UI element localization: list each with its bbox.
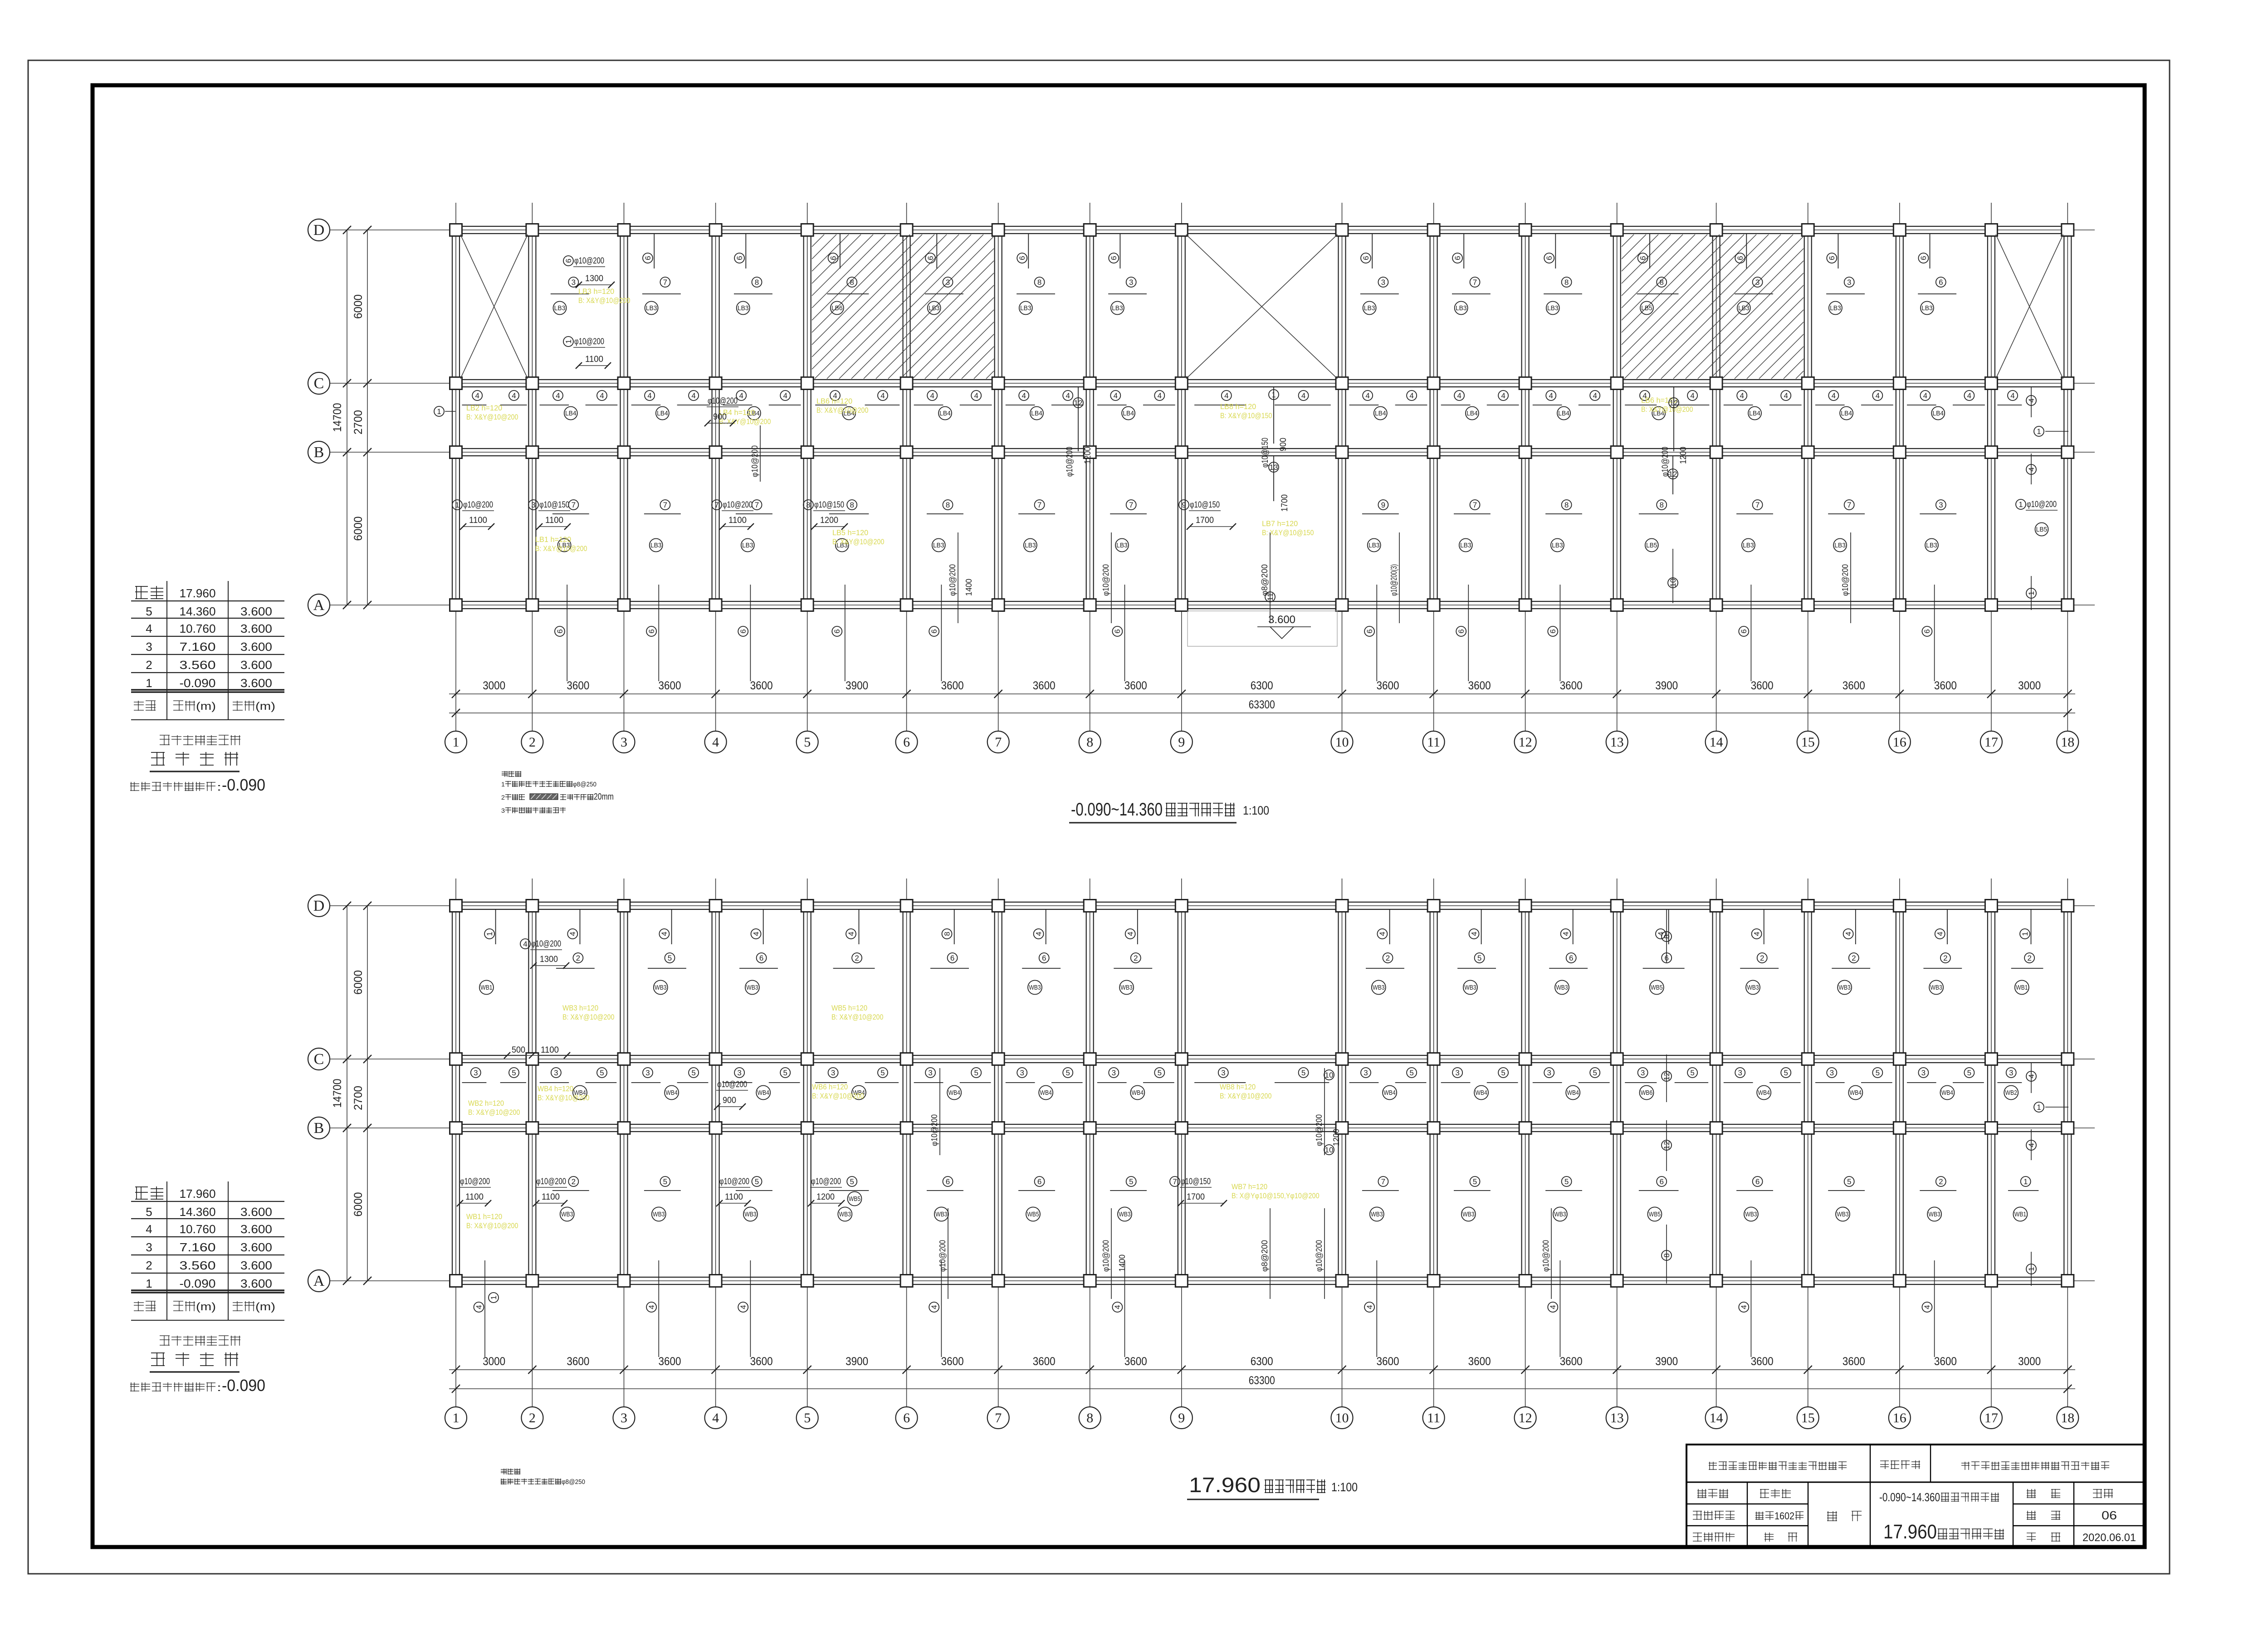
- svg-text:1: 1: [455, 501, 459, 509]
- svg-text:1400: 1400: [1118, 1254, 1127, 1272]
- svg-text:1400: 1400: [964, 579, 973, 596]
- svg-text:4: 4: [880, 391, 885, 400]
- svg-text:1:100: 1:100: [1331, 1480, 1358, 1494]
- svg-text:φ10@150: φ10@150: [1181, 1177, 1211, 1186]
- svg-text:3600: 3600: [750, 679, 773, 692]
- svg-text:WB3: WB3: [1747, 984, 1759, 991]
- svg-text:WB3: WB3: [1462, 1210, 1474, 1218]
- svg-text:1100: 1100: [545, 516, 563, 525]
- svg-text:6: 6: [644, 256, 652, 260]
- svg-text:LB4: LB4: [1031, 410, 1042, 417]
- svg-text:WB1 h=120: WB1 h=120: [466, 1212, 502, 1221]
- svg-text:1100: 1100: [541, 1045, 559, 1055]
- svg-text:LB3: LB3: [1547, 304, 1559, 312]
- svg-text:3600: 3600: [1468, 1355, 1491, 1368]
- svg-text:3600: 3600: [1843, 679, 1865, 692]
- svg-text:1200: 1200: [820, 516, 838, 525]
- svg-text:WB3: WB3: [935, 1210, 947, 1218]
- svg-text:14: 14: [1710, 735, 1723, 750]
- svg-text:1602: 1602: [1774, 1510, 1794, 1522]
- svg-text:2700: 2700: [352, 1086, 365, 1110]
- svg-text:2: 2: [146, 658, 152, 672]
- svg-text:WB3 h=120: WB3 h=120: [562, 1004, 598, 1012]
- svg-text:4: 4: [1923, 391, 1927, 400]
- svg-text:B: X&Y@10@200: B: X&Y@10@200: [466, 1221, 518, 1230]
- svg-text:LB5 h=120: LB5 h=120: [832, 528, 868, 537]
- svg-text:4: 4: [600, 391, 604, 400]
- svg-text:5: 5: [880, 1069, 885, 1077]
- svg-text:7: 7: [1037, 501, 1041, 509]
- svg-text:8: 8: [1564, 501, 1569, 509]
- svg-text:LB3: LB3: [1369, 542, 1380, 549]
- svg-text:5: 5: [755, 1177, 759, 1186]
- svg-text:6: 6: [1755, 1177, 1760, 1186]
- svg-text:WB3: WB3: [1838, 984, 1850, 991]
- svg-text:4: 4: [475, 391, 479, 400]
- svg-text:6: 6: [1638, 256, 1647, 260]
- svg-text:LB3: LB3: [1926, 542, 1937, 549]
- svg-text:1700: 1700: [1280, 494, 1290, 512]
- svg-text:WB2 h=120: WB2 h=120: [468, 1099, 504, 1108]
- svg-text:4: 4: [712, 735, 719, 750]
- svg-text:B: X&Y@10@200: B: X&Y@10@200: [562, 1013, 614, 1021]
- svg-text:4: 4: [1967, 391, 1971, 400]
- svg-text:3600: 3600: [567, 1355, 589, 1368]
- svg-text:4: 4: [1593, 391, 1597, 400]
- svg-text:1: 1: [146, 676, 152, 690]
- svg-text:φ10@200: φ10@200: [574, 337, 604, 347]
- svg-text:1: 1: [453, 735, 459, 750]
- svg-text:φ10@200: φ10@200: [930, 1114, 939, 1146]
- svg-text:7.160: 7.160: [180, 640, 216, 654]
- svg-text:WB6: WB6: [1641, 1089, 1652, 1097]
- svg-text:LB3 h=120: LB3 h=120: [578, 287, 614, 296]
- svg-text:4: 4: [1832, 391, 1836, 400]
- svg-text:16: 16: [1893, 735, 1906, 750]
- svg-text:1700: 1700: [1196, 516, 1214, 525]
- svg-text:1200: 1200: [816, 1192, 835, 1202]
- svg-text:3.600: 3.600: [1268, 614, 1295, 626]
- svg-text:B: X&Y@10@200: B: X&Y@10@200: [816, 406, 868, 415]
- svg-text:WB4: WB4: [665, 1089, 677, 1097]
- svg-text:4: 4: [1923, 1305, 1931, 1309]
- svg-text:900: 900: [713, 412, 727, 422]
- svg-text:7: 7: [714, 501, 719, 509]
- svg-text:LB3: LB3: [1116, 542, 1128, 549]
- svg-text:4: 4: [739, 391, 743, 400]
- svg-text:6: 6: [1453, 256, 1462, 260]
- svg-text:φ10@200: φ10@200: [460, 1177, 490, 1186]
- svg-text:LB3: LB3: [1020, 304, 1031, 312]
- svg-text:5: 5: [804, 735, 811, 750]
- svg-text:8: 8: [1037, 278, 1041, 287]
- svg-text:3600: 3600: [941, 1355, 964, 1368]
- svg-text:B: B: [314, 1120, 324, 1137]
- svg-text:B: X&Y@10@200: B: X&Y@10@200: [578, 296, 630, 305]
- svg-text:5: 5: [1593, 1069, 1597, 1077]
- svg-text:1: 1: [2021, 932, 2029, 936]
- svg-text:6: 6: [926, 256, 935, 260]
- svg-text:WB4 h=120: WB4 h=120: [538, 1084, 573, 1093]
- svg-text:5: 5: [1876, 1069, 1880, 1077]
- svg-text:8: 8: [850, 278, 854, 287]
- svg-text:5: 5: [1473, 1177, 1477, 1186]
- svg-text:12: 12: [1519, 1411, 1532, 1425]
- svg-text:3: 3: [554, 1069, 558, 1077]
- svg-text:WB7 h=120: WB7 h=120: [1232, 1182, 1267, 1191]
- svg-text:WB4: WB4: [1132, 1089, 1144, 1097]
- svg-text:5: 5: [1409, 1069, 1413, 1077]
- svg-text:LB3: LB3: [1456, 304, 1467, 312]
- svg-text:3600: 3600: [1124, 1355, 1147, 1368]
- svg-text:φ10@200: φ10@200: [2027, 500, 2057, 509]
- svg-text:B: X&Y@10@150: B: X&Y@10@150: [1262, 528, 1314, 537]
- svg-text:WB2: WB2: [2005, 1089, 2017, 1097]
- svg-text:6: 6: [833, 629, 841, 633]
- svg-text:4: 4: [739, 1305, 748, 1309]
- svg-text:5: 5: [1784, 1069, 1788, 1077]
- svg-text:LB3: LB3: [554, 304, 566, 312]
- svg-text:4: 4: [1936, 932, 1945, 936]
- svg-text:φ10@150: φ10@150: [1261, 438, 1270, 468]
- svg-text:4: 4: [1301, 391, 1305, 400]
- svg-text:LB7 h=120: LB7 h=120: [1262, 519, 1298, 528]
- svg-text:4: 4: [1549, 1305, 1557, 1309]
- svg-text:WB3: WB3: [1837, 1210, 1848, 1218]
- svg-text:φ10@200: φ10@200: [1065, 447, 1075, 477]
- svg-text:4: 4: [1690, 391, 1694, 400]
- svg-text:4: 4: [1022, 391, 1026, 400]
- svg-text:4: 4: [1066, 391, 1070, 400]
- svg-text:2: 2: [576, 954, 580, 962]
- svg-text:4: 4: [1876, 391, 1880, 400]
- svg-text:4: 4: [647, 1305, 656, 1309]
- svg-text:10: 10: [1325, 1071, 1334, 1079]
- svg-text:C: C: [314, 375, 324, 392]
- svg-text:LB3: LB3: [933, 542, 944, 549]
- svg-text:2: 2: [572, 1177, 576, 1186]
- svg-text:φ10@200: φ10@200: [574, 256, 604, 266]
- svg-text:4: 4: [660, 932, 669, 936]
- svg-text:6: 6: [903, 735, 910, 750]
- svg-text:6: 6: [1365, 629, 1374, 633]
- svg-text:5: 5: [783, 1069, 787, 1077]
- svg-text:3.600: 3.600: [240, 1205, 272, 1219]
- svg-text:1100: 1100: [585, 355, 603, 364]
- svg-text:10.760: 10.760: [180, 622, 216, 635]
- svg-text:4: 4: [1126, 932, 1135, 936]
- svg-text:8: 8: [1086, 1411, 1093, 1425]
- svg-text:B: X&Y@10@200: B: X&Y@10@200: [466, 413, 518, 421]
- svg-text:8: 8: [806, 501, 810, 509]
- svg-text:φ10@200: φ10@200: [1101, 564, 1110, 596]
- svg-text:WB3: WB3: [1556, 984, 1568, 991]
- svg-text:3.600: 3.600: [240, 640, 272, 654]
- svg-text:-0.090~14.360: -0.090~14.360: [1879, 1490, 1940, 1504]
- svg-text:7: 7: [1847, 501, 1851, 509]
- svg-text:WB3: WB3: [839, 1210, 851, 1218]
- svg-text:WB5: WB5: [1027, 1210, 1039, 1218]
- svg-text:4: 4: [1378, 932, 1387, 936]
- svg-text:6: 6: [950, 954, 954, 962]
- svg-text:-0.090: -0.090: [222, 1376, 265, 1395]
- svg-text:LB4: LB4: [1466, 410, 1478, 417]
- svg-text:φ10@200: φ10@200: [717, 1080, 747, 1089]
- svg-text:LB3: LB3: [929, 304, 940, 312]
- svg-text:3.600: 3.600: [240, 1222, 272, 1236]
- svg-text:4: 4: [1784, 391, 1788, 400]
- svg-text:1: 1: [489, 1295, 498, 1299]
- svg-text:3: 3: [1129, 278, 1133, 287]
- svg-text:63300: 63300: [1249, 1374, 1275, 1387]
- svg-text:4: 4: [2010, 391, 2014, 400]
- svg-text:LB3: LB3: [1743, 542, 1754, 549]
- svg-text:5: 5: [1129, 1177, 1133, 1186]
- svg-text:1100: 1100: [465, 1192, 484, 1202]
- svg-text:WB3: WB3: [1029, 984, 1041, 991]
- svg-text:3: 3: [645, 1069, 650, 1077]
- svg-text:3: 3: [1221, 1069, 1225, 1077]
- svg-text:06: 06: [2102, 1508, 2117, 1522]
- svg-text:6: 6: [1037, 1177, 1041, 1186]
- svg-text:WB3: WB3: [1928, 1210, 1940, 1218]
- svg-text:φ10@200: φ10@200: [723, 500, 753, 510]
- svg-text:3.600: 3.600: [240, 658, 272, 672]
- svg-text:3600: 3600: [1560, 1355, 1583, 1368]
- svg-text:LB4: LB4: [657, 410, 668, 417]
- svg-text:1: 1: [146, 1277, 152, 1290]
- svg-text:LB3: LB3: [1830, 304, 1841, 312]
- svg-text:LB4: LB4: [1841, 410, 1852, 417]
- svg-text:6: 6: [1919, 256, 1928, 260]
- svg-text:3: 3: [1830, 1069, 1834, 1077]
- svg-text:LB2 h=120: LB2 h=120: [466, 404, 502, 412]
- svg-text:5: 5: [663, 1177, 667, 1186]
- svg-text:3: 3: [501, 807, 505, 814]
- svg-text:5: 5: [1301, 1069, 1305, 1077]
- svg-text:WB1: WB1: [480, 984, 492, 991]
- svg-text:15: 15: [1801, 735, 1815, 750]
- svg-text:9: 9: [1381, 501, 1385, 509]
- svg-text:φ10@150: φ10@150: [539, 500, 569, 510]
- svg-text:6: 6: [564, 259, 573, 263]
- svg-text:2700: 2700: [352, 410, 365, 434]
- svg-text:3: 3: [1547, 1069, 1551, 1077]
- svg-text:6000: 6000: [352, 517, 365, 541]
- svg-text:6: 6: [739, 629, 748, 633]
- svg-text:WB3: WB3: [1373, 984, 1384, 991]
- svg-text:5: 5: [1477, 954, 1481, 962]
- svg-text:WB4: WB4: [1567, 1089, 1579, 1097]
- svg-text:10: 10: [1325, 1146, 1334, 1154]
- svg-text:WB4: WB4: [1040, 1089, 1052, 1097]
- svg-text:5: 5: [668, 954, 672, 962]
- svg-text:6: 6: [556, 629, 564, 633]
- svg-text:9: 9: [1178, 1411, 1185, 1425]
- svg-text:1100: 1100: [725, 1192, 743, 1202]
- svg-text:15: 15: [1801, 1411, 1815, 1425]
- svg-text:7: 7: [1381, 1177, 1385, 1186]
- svg-text:13: 13: [1610, 735, 1624, 750]
- svg-text:7: 7: [1173, 1177, 1177, 1186]
- svg-text:(m): (m): [255, 700, 275, 713]
- svg-text:7.160: 7.160: [180, 1240, 216, 1254]
- svg-text:3.600: 3.600: [240, 1259, 272, 1272]
- svg-text:7: 7: [995, 735, 1002, 750]
- svg-text:3: 3: [1020, 1069, 1024, 1077]
- svg-text:10.760: 10.760: [180, 1222, 216, 1236]
- svg-text:WB3: WB3: [655, 984, 666, 991]
- svg-text:6: 6: [1362, 256, 1370, 260]
- svg-text:LB3: LB3: [1552, 542, 1563, 549]
- svg-text:5: 5: [600, 1069, 604, 1077]
- svg-text:6000: 6000: [352, 294, 365, 319]
- svg-text:φ10@200: φ10@200: [463, 500, 493, 510]
- svg-text:5: 5: [1501, 1069, 1505, 1077]
- svg-text:63300: 63300: [1249, 698, 1275, 711]
- svg-text:3900: 3900: [846, 1355, 868, 1368]
- svg-text:7: 7: [663, 501, 667, 509]
- svg-text:φ10@150: φ10@150: [814, 500, 844, 510]
- svg-text:LB3: LB3: [1921, 304, 1933, 312]
- svg-text:3600: 3600: [1124, 679, 1147, 692]
- svg-text:B: X&Y@10@200: B: X&Y@10@200: [832, 537, 884, 546]
- svg-text:LB4: LB4: [939, 410, 951, 417]
- svg-text:5: 5: [512, 1069, 516, 1077]
- svg-text:1: 1: [564, 339, 573, 343]
- svg-text:2: 2: [529, 735, 536, 750]
- svg-text:11: 11: [1427, 735, 1440, 750]
- svg-text:18: 18: [2061, 735, 2074, 750]
- svg-text:WB4: WB4: [1850, 1089, 1862, 1097]
- svg-text:6: 6: [1549, 629, 1557, 633]
- svg-text:18: 18: [2061, 1411, 2074, 1425]
- svg-text:6300: 6300: [1251, 1355, 1273, 1368]
- svg-text:3.600: 3.600: [240, 605, 272, 618]
- svg-text:3600: 3600: [1560, 679, 1583, 692]
- svg-text:1100: 1100: [469, 516, 487, 525]
- svg-text:3600: 3600: [750, 1355, 773, 1368]
- svg-text:φ10@200: φ10@200: [719, 1177, 749, 1186]
- svg-text:4: 4: [1844, 932, 1853, 936]
- svg-text:φ10@200: φ10@200: [1315, 1240, 1324, 1272]
- svg-text:3: 3: [2009, 1069, 2013, 1077]
- svg-text:3900: 3900: [1655, 1355, 1678, 1368]
- svg-text:3600: 3600: [1934, 679, 1957, 692]
- svg-text:WB3: WB3: [1554, 1210, 1566, 1218]
- svg-text:17.960: 17.960: [180, 1187, 216, 1201]
- svg-text:17: 17: [1984, 735, 1998, 750]
- svg-text:3: 3: [1112, 1069, 1116, 1077]
- svg-text:14.360: 14.360: [180, 605, 216, 618]
- svg-text:3900: 3900: [1655, 679, 1678, 692]
- svg-text:6: 6: [1042, 954, 1046, 962]
- svg-text:5: 5: [974, 1069, 978, 1077]
- svg-text:6300: 6300: [1251, 679, 1273, 692]
- svg-text:LB4: LB4: [1375, 410, 1386, 417]
- svg-text:4: 4: [1740, 391, 1744, 400]
- svg-text:6: 6: [1659, 1177, 1663, 1186]
- svg-text::: :: [216, 781, 222, 793]
- svg-text:3600: 3600: [1377, 1355, 1399, 1368]
- svg-text:7: 7: [1473, 278, 1477, 287]
- svg-text:WB3: WB3: [1464, 984, 1476, 991]
- svg-text:WB3: WB3: [744, 1210, 756, 1218]
- svg-text:1300: 1300: [585, 274, 603, 283]
- svg-text:6: 6: [735, 256, 744, 260]
- svg-text:3000: 3000: [483, 679, 505, 692]
- svg-text:3: 3: [831, 1069, 835, 1077]
- svg-text:8: 8: [850, 501, 854, 509]
- svg-text:WB3: WB3: [1930, 984, 1942, 991]
- svg-text:3: 3: [1381, 278, 1385, 287]
- svg-text:5: 5: [1158, 1069, 1162, 1077]
- svg-text:B: X&Y@10@150: B: X&Y@10@150: [1220, 411, 1272, 420]
- svg-text:10: 10: [1335, 735, 1349, 750]
- svg-text:LB4: LB4: [1123, 410, 1134, 417]
- svg-text:φ10@200: φ10@200: [1101, 1240, 1110, 1272]
- svg-text:5: 5: [146, 1205, 152, 1219]
- svg-text:14.360: 14.360: [180, 1205, 216, 1219]
- svg-text:6: 6: [930, 629, 938, 633]
- svg-text:7: 7: [572, 501, 576, 509]
- svg-text:17.960: 17.960: [180, 586, 216, 600]
- svg-text:4: 4: [1114, 391, 1118, 400]
- svg-text:1700: 1700: [1187, 1192, 1205, 1202]
- svg-text:4: 4: [1752, 932, 1761, 936]
- svg-text:1: 1: [485, 932, 494, 936]
- svg-text:LB3: LB3: [742, 542, 753, 549]
- svg-text:(m): (m): [196, 1301, 216, 1313]
- svg-text:LB4: LB4: [565, 410, 577, 417]
- svg-text:5: 5: [1690, 1069, 1694, 1077]
- svg-text:(m): (m): [255, 1301, 275, 1313]
- svg-text:φ10@200: φ10@200: [1541, 1240, 1550, 1272]
- svg-text:LB3: LB3: [1738, 304, 1750, 312]
- svg-text:B: X&Y@10@200: B: X&Y@10@200: [719, 417, 771, 426]
- svg-text:-0.090~14.360: -0.090~14.360: [1071, 800, 1163, 820]
- svg-text:5: 5: [1847, 1177, 1851, 1186]
- svg-text:LB3: LB3: [1834, 542, 1846, 549]
- svg-text:11: 11: [1427, 1411, 1440, 1425]
- svg-text:6: 6: [1736, 256, 1745, 260]
- svg-text:LB5: LB5: [2036, 526, 2048, 533]
- svg-text:WB3: WB3: [561, 1210, 573, 1218]
- svg-text:3600: 3600: [567, 679, 589, 692]
- svg-text:3: 3: [1738, 1069, 1742, 1077]
- svg-text:1300: 1300: [540, 955, 558, 964]
- svg-text:WB5: WB5: [1651, 984, 1662, 991]
- svg-text:6: 6: [1110, 256, 1118, 260]
- svg-text:WB5: WB5: [1649, 1210, 1661, 1218]
- svg-text:WB1: WB1: [2014, 1210, 2026, 1218]
- svg-text:φ10@200: φ10@200: [1315, 1114, 1324, 1146]
- svg-text:WB1: WB1: [2016, 984, 2028, 991]
- svg-text:LB4: LB4: [1749, 410, 1760, 417]
- svg-text:3600: 3600: [1751, 679, 1774, 692]
- svg-text:1:100: 1:100: [1243, 804, 1269, 817]
- svg-text:3600: 3600: [1033, 679, 1056, 692]
- svg-text:1200: 1200: [1083, 447, 1093, 464]
- svg-text:3: 3: [1641, 1069, 1645, 1077]
- svg-text:A: A: [313, 1273, 325, 1289]
- svg-text:3: 3: [946, 278, 950, 287]
- svg-text:6: 6: [1923, 629, 1931, 633]
- svg-text:B: X@Yφ10@150,Yφ10@200: B: X@Yφ10@150,Yφ10@200: [1232, 1191, 1320, 1200]
- svg-text:WB4: WB4: [1941, 1089, 1953, 1097]
- svg-text:(m): (m): [196, 700, 216, 713]
- svg-text:4: 4: [146, 1222, 152, 1236]
